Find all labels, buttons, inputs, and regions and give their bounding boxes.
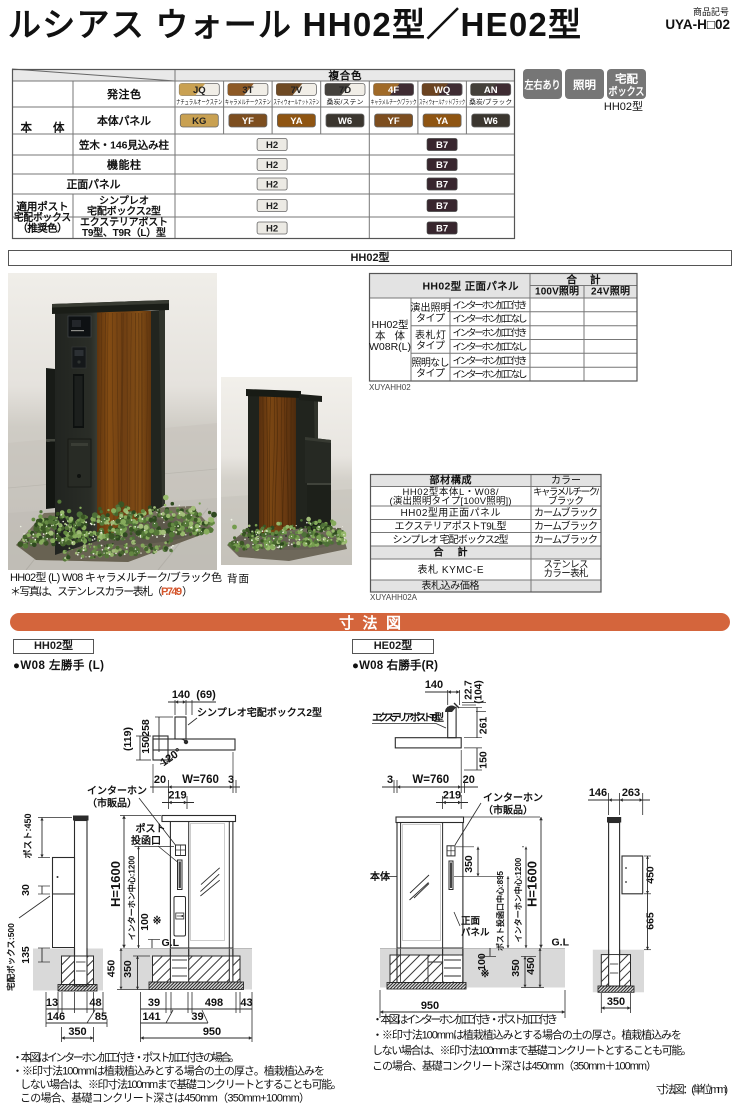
svg-text:950: 950 bbox=[421, 1000, 439, 1012]
svg-text:シンプレオ: シンプレオ bbox=[99, 194, 149, 207]
svg-text:B7: B7 bbox=[436, 160, 448, 171]
svg-text:43: 43 bbox=[240, 997, 252, 1009]
svg-text:・※印寸法100mmは植栽植込みとする場合の土の厚さ。植栽植: ・※印寸法100mmは植栽植込みとする場合の土の厚さ。植栽植込みを bbox=[372, 1028, 682, 1042]
svg-text:背面: 背面 bbox=[227, 572, 249, 585]
svg-text:498: 498 bbox=[205, 997, 223, 1009]
svg-text:(演出照明タイプ[100V照明]): (演出照明タイプ[100V照明]) bbox=[390, 495, 512, 507]
svg-text:寸法図: 寸法図 bbox=[339, 614, 401, 632]
svg-text:450: 450 bbox=[106, 960, 118, 978]
svg-text:●W08 左勝手 (L): ●W08 左勝手 (L) bbox=[13, 658, 104, 672]
svg-text:キャラメルチーク/ブラック: キャラメルチーク/ブラック bbox=[371, 97, 417, 106]
svg-text:W=760: W=760 bbox=[182, 774, 219, 786]
svg-text:7D: 7D bbox=[339, 85, 351, 96]
svg-text:219: 219 bbox=[443, 790, 461, 802]
svg-text:146: 146 bbox=[589, 787, 607, 799]
svg-text:カームブラック: カームブラック bbox=[534, 533, 598, 546]
svg-text:H2: H2 bbox=[266, 180, 278, 191]
svg-text:JQ: JQ bbox=[193, 85, 206, 96]
svg-text:AN: AN bbox=[484, 85, 498, 96]
svg-text:HH02型 (L) W08 キャラメルチーク/ブラック色: HH02型 (L) W08 キャラメルチーク/ブラック色 bbox=[10, 570, 222, 584]
svg-text:カームブラック: カームブラック bbox=[534, 520, 598, 533]
svg-text:インターホン中心:1200: インターホン中心:1200 bbox=[127, 855, 137, 940]
svg-text:宅配: 宅配 bbox=[615, 72, 638, 86]
svg-text:投函口: 投函口 bbox=[131, 834, 161, 847]
svg-text:タイプ: タイプ bbox=[416, 312, 445, 324]
svg-text:インターホン: インターホン bbox=[87, 785, 147, 797]
svg-text:100: 100 bbox=[139, 913, 151, 931]
svg-text:ポスト:450: ポスト:450 bbox=[22, 813, 33, 858]
svg-text:350: 350 bbox=[510, 959, 522, 977]
svg-text:インターホン加工なし: インターホン加工なし bbox=[453, 314, 528, 325]
svg-text:エクステリアポストT9型: エクステリアポストT9型 bbox=[372, 711, 444, 724]
svg-text:(104): (104) bbox=[474, 680, 485, 703]
svg-text:H2: H2 bbox=[266, 160, 278, 171]
svg-text:140: 140 bbox=[172, 689, 190, 701]
svg-text:135: 135 bbox=[20, 946, 32, 964]
svg-text:(119): (119) bbox=[122, 727, 134, 751]
svg-text:カームブラック: カームブラック bbox=[534, 506, 598, 519]
svg-text:タイプ: タイプ bbox=[416, 368, 445, 380]
svg-text:インターホン加工なし: インターホン加工なし bbox=[453, 342, 528, 353]
svg-text:（市販品）: （市販品） bbox=[483, 804, 533, 817]
svg-text:B7: B7 bbox=[436, 224, 448, 235]
svg-text:20: 20 bbox=[154, 774, 166, 786]
svg-text:150: 150 bbox=[140, 736, 152, 754]
svg-text:140: 140 bbox=[425, 679, 443, 691]
svg-text:KG: KG bbox=[192, 116, 206, 127]
svg-text:カラー表札: カラー表札 bbox=[544, 568, 589, 580]
svg-text:この場合、基礎コンクリート深さは450mm（350mm＋10: この場合、基礎コンクリート深さは450mm（350mm＋100mm） bbox=[372, 1059, 657, 1073]
svg-text:G.L: G.L bbox=[552, 937, 570, 949]
svg-text:発注色: 発注色 bbox=[106, 87, 141, 101]
svg-text:261: 261 bbox=[478, 717, 490, 735]
svg-text:＊写真は、ステンレスカラー表札（P.749 ）: ＊写真は、ステンレスカラー表札（P.749 ） bbox=[10, 584, 193, 598]
svg-text:インターホン加工なし: インターホン加工なし bbox=[453, 370, 528, 381]
svg-text:350: 350 bbox=[122, 960, 134, 978]
svg-text:（市販品）: （市販品） bbox=[87, 797, 137, 810]
svg-text:左右あり: 左右あり bbox=[524, 78, 561, 92]
svg-text:H2: H2 bbox=[266, 140, 278, 151]
svg-text:表札灯: 表札灯 bbox=[415, 329, 446, 342]
svg-text:48: 48 bbox=[89, 997, 101, 1009]
svg-text:665: 665 bbox=[645, 912, 657, 930]
svg-text:・本図はインターホン加工付き・ポスト加工付き: ・本図はインターホン加工付き・ポスト加工付き bbox=[372, 1012, 558, 1026]
svg-text:桑炭/ブラック: 桑炭/ブラック bbox=[469, 97, 512, 106]
svg-text:450: 450 bbox=[645, 866, 657, 884]
svg-text:エクステリアポストT9L型: エクステリアポストT9L型 bbox=[395, 520, 507, 533]
svg-text:219: 219 bbox=[168, 790, 186, 802]
svg-text:150: 150 bbox=[478, 751, 490, 769]
svg-text:正面: 正面 bbox=[461, 916, 481, 927]
svg-text:4F: 4F bbox=[388, 85, 399, 96]
svg-text:350: 350 bbox=[463, 855, 475, 873]
svg-text:ナチュラルオークステン: ナチュラルオークステン bbox=[176, 98, 222, 106]
svg-text:桑炭/ステン: 桑炭/ステン bbox=[327, 97, 364, 106]
svg-text:3: 3 bbox=[387, 774, 393, 786]
svg-text:機能柱: 機能柱 bbox=[107, 158, 141, 172]
svg-text:インターホン加工付き: インターホン加工付き bbox=[453, 328, 528, 339]
svg-text:3T: 3T bbox=[242, 85, 253, 96]
svg-text:H2: H2 bbox=[266, 201, 278, 212]
svg-text:24V照明: 24V照明 bbox=[591, 286, 630, 298]
svg-text:照明: 照明 bbox=[573, 79, 596, 92]
svg-text:T9型、T9R（L）型: T9型、T9R（L）型 bbox=[82, 226, 166, 239]
svg-text:表札込み価格: 表札込み価格 bbox=[422, 579, 480, 592]
svg-text:スティウォールナット/ブラック: スティウォールナット/ブラック bbox=[419, 97, 465, 106]
svg-text:しない場合は、※印寸法100mmまで基礎コンクリートとするこ: しない場合は、※印寸法100mmまで基礎コンクリートとすることも可能。 bbox=[372, 1043, 692, 1057]
svg-text:宅配ボックス:500: 宅配ボックス:500 bbox=[6, 923, 16, 991]
svg-text:表札 KYMC-E: 表札 KYMC-E bbox=[418, 563, 484, 576]
svg-text:B7: B7 bbox=[436, 140, 448, 151]
svg-text:正面パネル: 正面パネル bbox=[67, 178, 121, 191]
svg-text:350: 350 bbox=[607, 996, 625, 1008]
svg-text:B7: B7 bbox=[436, 201, 448, 212]
svg-text:（推奨色）: （推奨色） bbox=[18, 222, 68, 235]
svg-text:宅配ボックス2型: 宅配ボックス2型 bbox=[87, 205, 161, 218]
svg-text:インターホン: インターホン bbox=[483, 792, 543, 804]
svg-text:WQ: WQ bbox=[434, 85, 450, 96]
svg-text:H=1600: H=1600 bbox=[525, 861, 540, 907]
svg-text:W6: W6 bbox=[338, 116, 352, 127]
svg-text:UYA-H□02: UYA-H□02 bbox=[665, 17, 730, 32]
svg-text:本 体: 本 体 bbox=[21, 121, 66, 135]
svg-text:(69): (69) bbox=[196, 689, 216, 701]
svg-text:W08R(L): W08R(L) bbox=[369, 341, 411, 353]
svg-text:部材構成: 部材構成 bbox=[430, 474, 472, 487]
svg-text:ポスト: ポスト bbox=[136, 822, 166, 835]
svg-text:HH02型: HH02型 bbox=[604, 99, 643, 113]
svg-text:HH02型 正面パネル: HH02型 正面パネル bbox=[423, 280, 520, 293]
svg-text:W=760: W=760 bbox=[412, 774, 449, 786]
svg-text:照明なし: 照明なし bbox=[412, 357, 450, 369]
svg-text:合 計: 合 計 bbox=[433, 546, 468, 559]
svg-text:商品記号: 商品記号 bbox=[693, 6, 729, 17]
svg-text:●W08 右勝手(R): ●W08 右勝手(R) bbox=[352, 658, 438, 672]
svg-text:ポスト投函口中心:895: ポスト投函口中心:895 bbox=[495, 870, 505, 951]
svg-text:100V照明: 100V照明 bbox=[535, 286, 579, 298]
svg-text:パネル: パネル bbox=[461, 927, 490, 939]
svg-text:※: ※ bbox=[153, 915, 162, 927]
svg-text:ブラック: ブラック bbox=[548, 495, 584, 507]
svg-text:G.L: G.L bbox=[162, 937, 180, 949]
svg-text:複合色: 複合色 bbox=[328, 69, 363, 82]
svg-text:YA: YA bbox=[290, 116, 302, 127]
svg-text:※: ※ bbox=[481, 968, 490, 980]
svg-text:H2: H2 bbox=[266, 224, 278, 235]
svg-text:263: 263 bbox=[622, 787, 640, 799]
svg-text:W6: W6 bbox=[484, 116, 498, 127]
svg-text:7V: 7V bbox=[291, 85, 303, 96]
svg-text:本体パネル: 本体パネル bbox=[97, 114, 151, 128]
svg-text:HH02型用正面パネル: HH02型用正面パネル bbox=[401, 506, 501, 519]
svg-text:39: 39 bbox=[148, 997, 160, 1009]
svg-text:450: 450 bbox=[525, 957, 537, 975]
svg-text:エクステリアポスト: エクステリアポスト bbox=[80, 216, 168, 229]
svg-text:インターホン加工付き: インターホン加工付き bbox=[453, 300, 528, 311]
svg-text:ボックス: ボックス bbox=[609, 84, 645, 98]
svg-text:13: 13 bbox=[46, 997, 58, 1009]
svg-text:笠木・146見込み柱: 笠木・146見込み柱 bbox=[78, 139, 170, 152]
svg-text:シンプレオ宅配ボックス2型: シンプレオ宅配ボックス2型 bbox=[197, 706, 322, 719]
svg-text:YF: YF bbox=[242, 116, 254, 127]
svg-text:H=1600: H=1600 bbox=[108, 861, 123, 907]
svg-text:インターホン加工付き: インターホン加工付き bbox=[453, 356, 528, 367]
svg-text:スティウォールナットステン: スティウォールナットステン bbox=[273, 98, 319, 106]
svg-text:合 計: 合 計 bbox=[566, 273, 602, 286]
svg-text:258: 258 bbox=[140, 719, 152, 737]
svg-text:キャラメルチークステン: キャラメルチークステン bbox=[225, 98, 271, 106]
svg-text:シンプレオ 宅配ボックス2型: シンプレオ 宅配ボックス2型 bbox=[393, 533, 509, 546]
svg-text:インターホン中心:1200: インターホン中心:1200 bbox=[513, 857, 523, 942]
svg-text:30: 30 bbox=[20, 884, 32, 896]
svg-text:B7: B7 bbox=[436, 180, 448, 191]
svg-text:寸法図：(単位mm): 寸法図：(単位mm) bbox=[656, 1082, 728, 1096]
svg-text:ルシアス ウォール HH02型／HE02型: ルシアス ウォール HH02型／HE02型 bbox=[8, 6, 581, 43]
svg-text:YA: YA bbox=[436, 116, 448, 127]
svg-text:YF: YF bbox=[388, 116, 400, 127]
svg-text:演出照明: 演出照明 bbox=[411, 301, 451, 314]
svg-text:カラー: カラー bbox=[551, 475, 581, 487]
svg-text:タイプ: タイプ bbox=[416, 340, 445, 352]
